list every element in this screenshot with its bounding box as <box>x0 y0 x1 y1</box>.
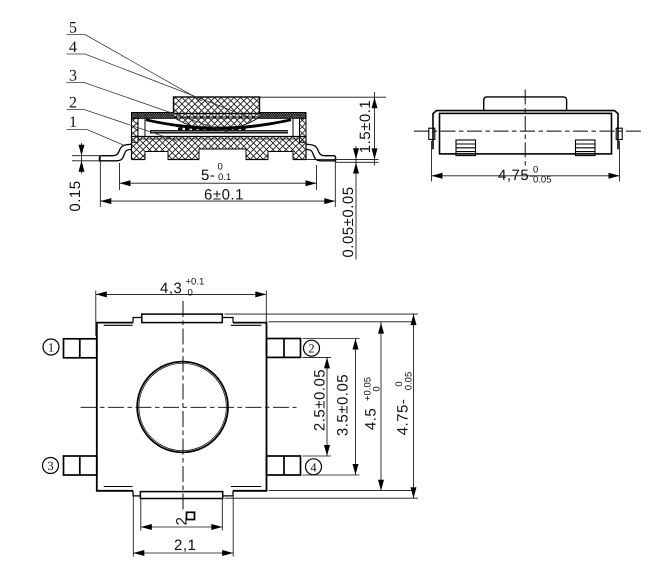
svg-text:0: 0 <box>188 288 193 299</box>
svg-text:6±0.1: 6±0.1 <box>204 187 244 204</box>
svg-text:0.05: 0.05 <box>404 372 415 391</box>
svg-text:2.5±0.05: 2.5±0.05 <box>312 369 329 431</box>
svg-text:4.75-: 4.75- <box>395 399 412 436</box>
svg-text:2: 2 <box>308 342 314 356</box>
svg-text:2: 2 <box>69 95 77 112</box>
svg-text:2: 2 <box>174 517 191 526</box>
svg-text:0.15: 0.15 <box>67 180 84 211</box>
svg-text:5: 5 <box>69 20 77 37</box>
svg-text:0: 0 <box>372 386 383 391</box>
svg-text:0.05±0.05: 0.05±0.05 <box>340 186 357 257</box>
svg-text:0: 0 <box>218 162 223 173</box>
svg-text:2,1: 2,1 <box>174 537 196 554</box>
svg-text:0.1: 0.1 <box>218 172 231 183</box>
svg-text:3: 3 <box>69 68 77 85</box>
svg-text:1: 1 <box>69 114 77 131</box>
svg-text:4: 4 <box>310 460 317 474</box>
svg-text:4: 4 <box>69 39 77 56</box>
svg-text:4,3: 4,3 <box>160 280 182 297</box>
svg-text:4,75-: 4,75- <box>498 167 535 184</box>
svg-text:1.5±0.1: 1.5±0.1 <box>357 100 374 153</box>
svg-text:+0.1: +0.1 <box>186 277 205 288</box>
svg-text:0.05: 0.05 <box>533 175 552 186</box>
svg-text:1: 1 <box>48 341 54 355</box>
svg-text:5-: 5- <box>201 167 215 184</box>
svg-text:4.5: 4.5 <box>363 408 380 430</box>
svg-text:3.5±0.05: 3.5±0.05 <box>335 374 352 436</box>
svg-text:3: 3 <box>47 459 53 473</box>
